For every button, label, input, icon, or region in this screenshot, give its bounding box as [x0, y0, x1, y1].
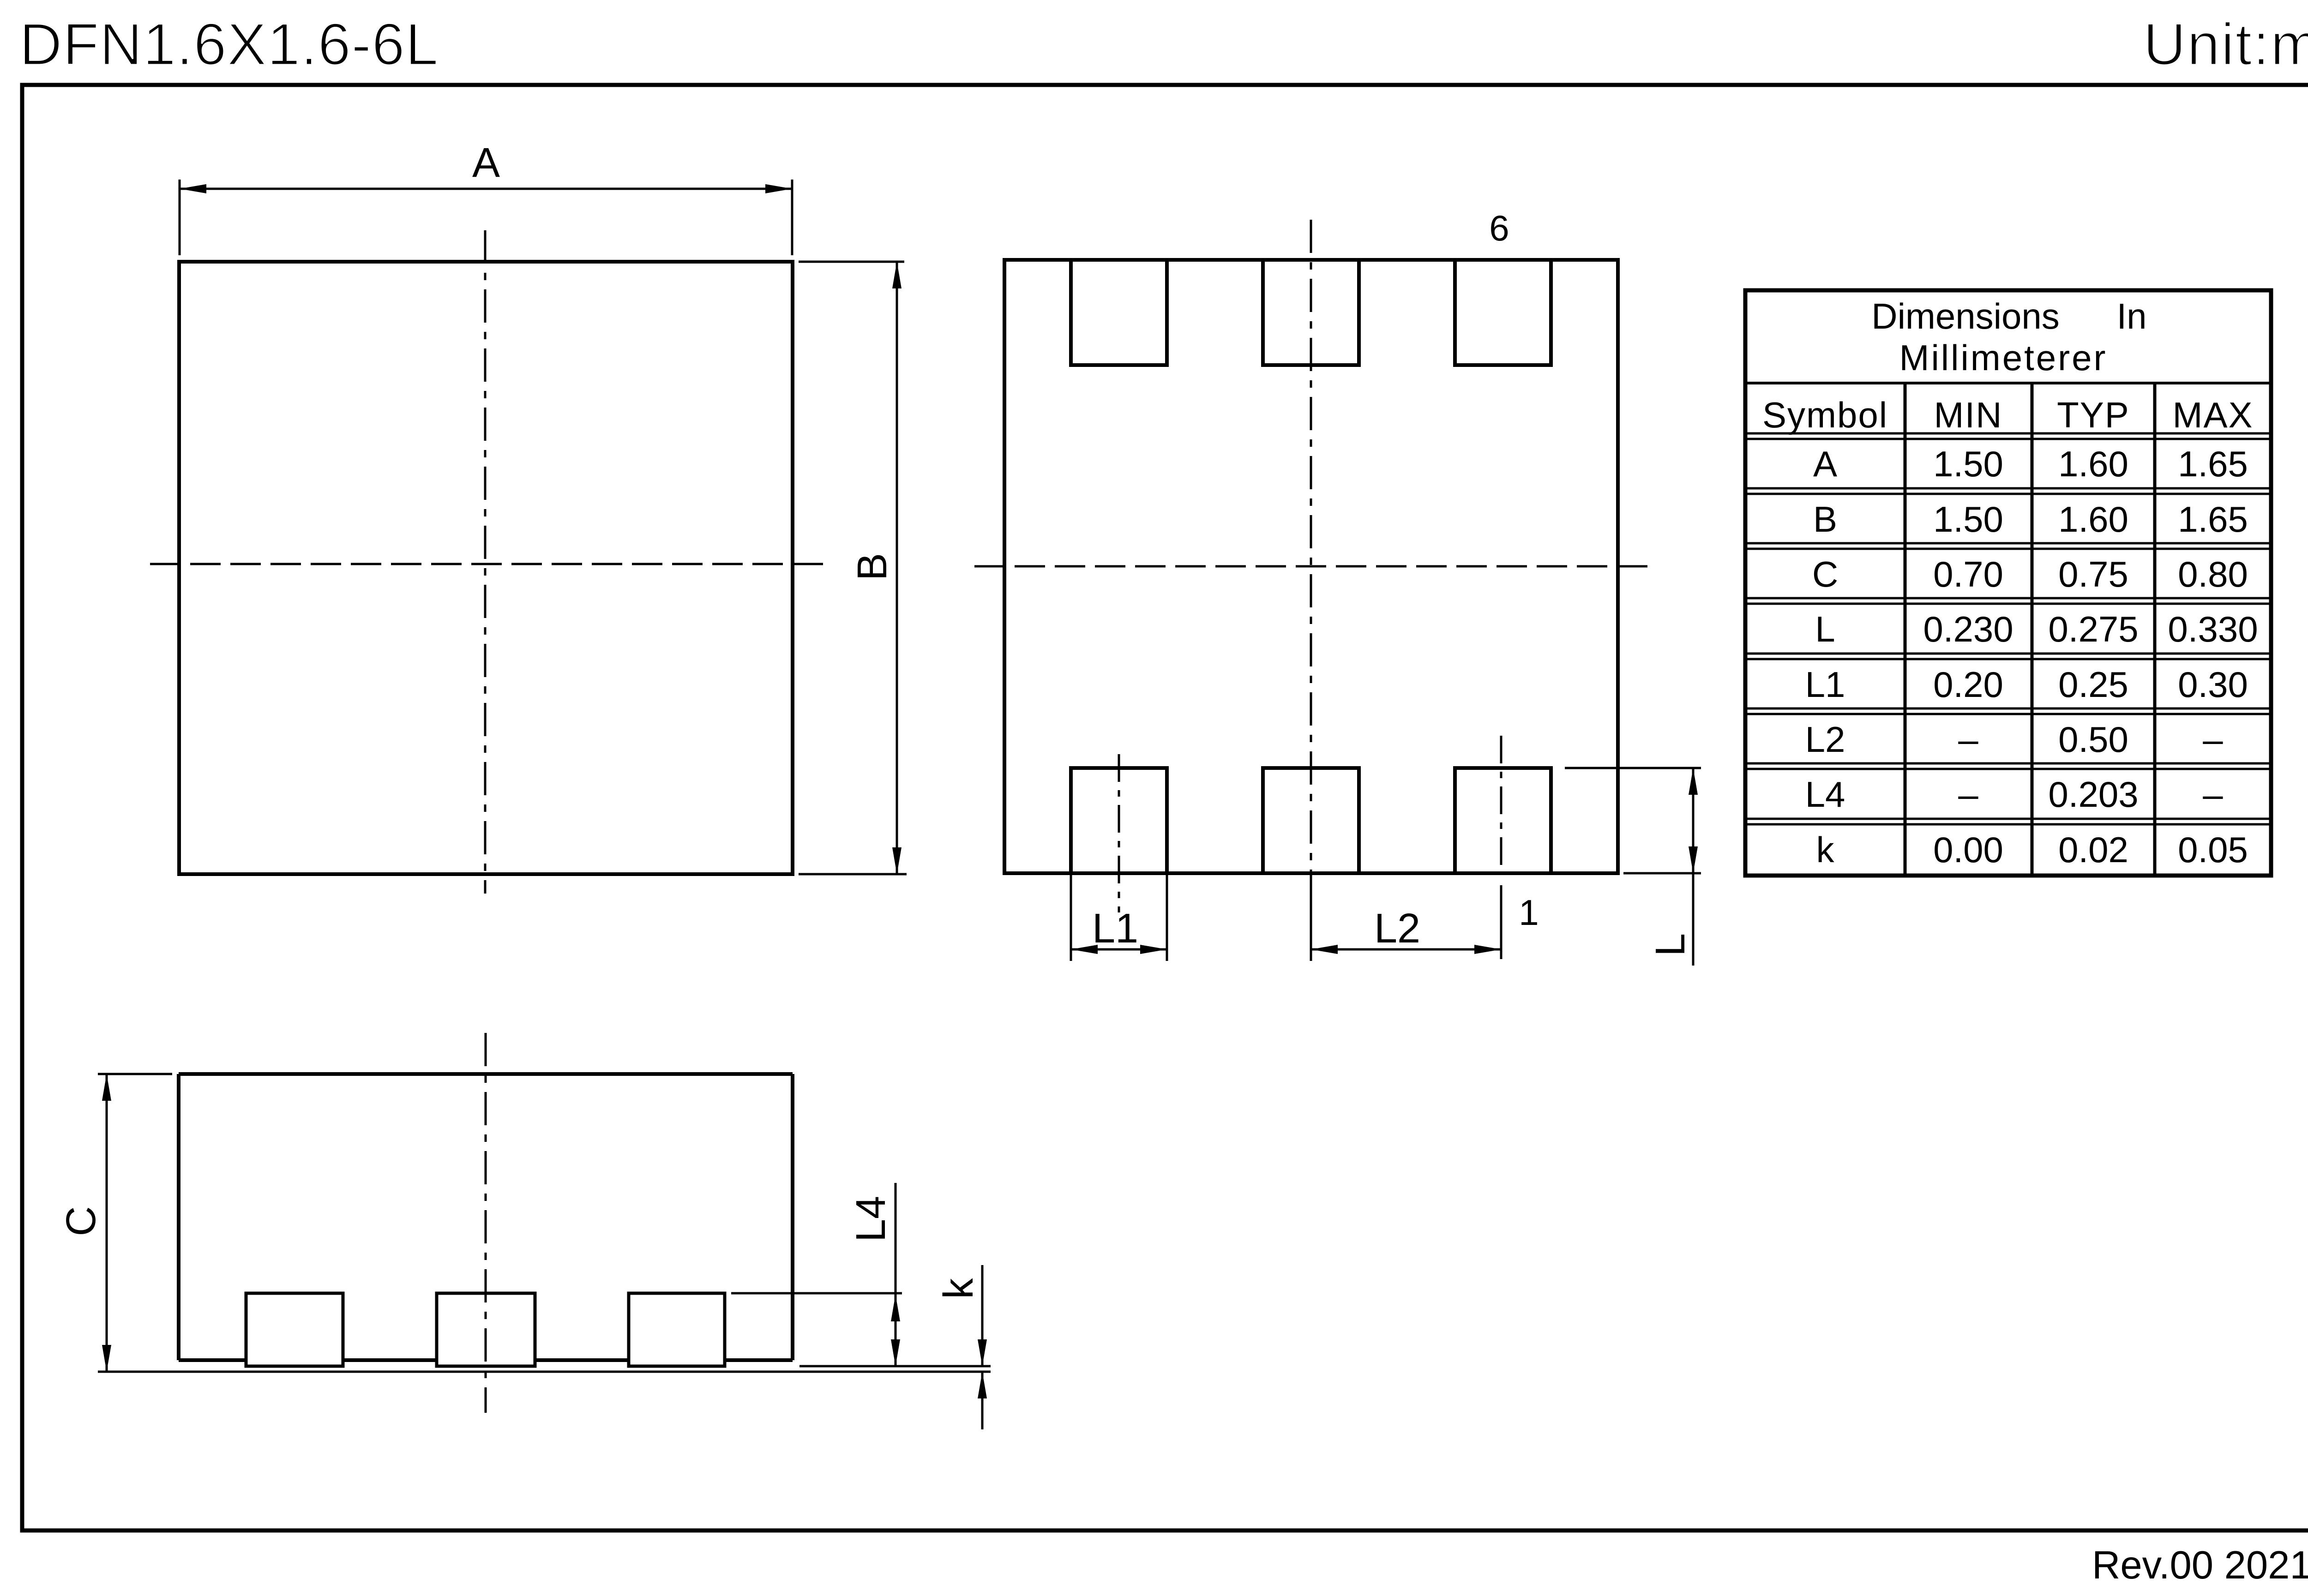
svg-text:1.65: 1.65	[2178, 444, 2248, 484]
svg-text:C: C	[58, 1206, 104, 1236]
svg-text:–: –	[2203, 719, 2223, 760]
svg-text:C: C	[1812, 554, 1838, 594]
svg-text:6: 6	[1489, 208, 1509, 248]
svg-text:–: –	[2203, 774, 2223, 815]
svg-text:1: 1	[1519, 892, 1539, 933]
svg-text:0.275: 0.275	[2048, 609, 2138, 649]
svg-text:L4: L4	[848, 1196, 894, 1242]
svg-text:0.230: 0.230	[1923, 609, 2013, 649]
svg-text:L: L	[1815, 609, 1835, 649]
svg-text:0.00: 0.00	[1933, 829, 2003, 870]
svg-text:0.330: 0.330	[2168, 609, 2258, 649]
svg-text:0.75: 0.75	[2058, 554, 2128, 594]
svg-text:0.20: 0.20	[1933, 664, 2003, 705]
svg-text:–: –	[1958, 719, 1978, 760]
svg-text:L4: L4	[1805, 774, 1845, 815]
svg-text:k: k	[1816, 829, 1835, 870]
svg-text:0.02: 0.02	[2058, 829, 2128, 870]
svg-text:1.60: 1.60	[2058, 444, 2128, 484]
svg-text:L2: L2	[1374, 906, 1420, 952]
svg-text:k: k	[936, 1278, 982, 1299]
svg-text:0.05: 0.05	[2178, 829, 2248, 870]
svg-text:1.50: 1.50	[1933, 499, 2003, 540]
svg-text:0.25: 0.25	[2058, 664, 2128, 705]
svg-text:B: B	[849, 553, 896, 581]
svg-text:L1: L1	[1805, 664, 1845, 705]
svg-text:Unit:mm: Unit:mm	[2143, 12, 2308, 78]
svg-text:TYP: TYP	[2057, 395, 2130, 435]
svg-text:0.203: 0.203	[2048, 774, 2138, 815]
svg-text:0.70: 0.70	[1933, 554, 2003, 594]
svg-text:L2: L2	[1805, 719, 1845, 760]
svg-text:L1: L1	[1092, 906, 1138, 952]
svg-text:Dimensions: Dimensions	[1871, 296, 2059, 336]
svg-text:0.50: 0.50	[2058, 719, 2128, 760]
svg-text:–: –	[1958, 774, 1978, 815]
svg-text:Millimeterer: Millimeterer	[1899, 337, 2107, 378]
svg-text:Symbol: Symbol	[1762, 395, 1888, 435]
svg-text:0.80: 0.80	[2178, 554, 2248, 594]
svg-text:DFN1.6X1.6-6L: DFN1.6X1.6-6L	[19, 12, 439, 78]
svg-text:B: B	[1813, 499, 1837, 540]
svg-text:0.30: 0.30	[2178, 664, 2248, 705]
svg-text:A: A	[1813, 444, 1837, 484]
svg-text:MAX: MAX	[2172, 395, 2253, 435]
svg-text:In: In	[2116, 296, 2146, 336]
svg-text:L: L	[1647, 933, 1694, 956]
svg-text:MIN: MIN	[1934, 395, 2003, 435]
svg-text:1.60: 1.60	[2058, 499, 2128, 540]
svg-text:Rev.00 202107: Rev.00 202107	[2092, 1543, 2308, 1587]
svg-text:A: A	[472, 140, 500, 186]
svg-text:1.50: 1.50	[1933, 444, 2003, 484]
svg-text:1.65: 1.65	[2178, 499, 2248, 540]
